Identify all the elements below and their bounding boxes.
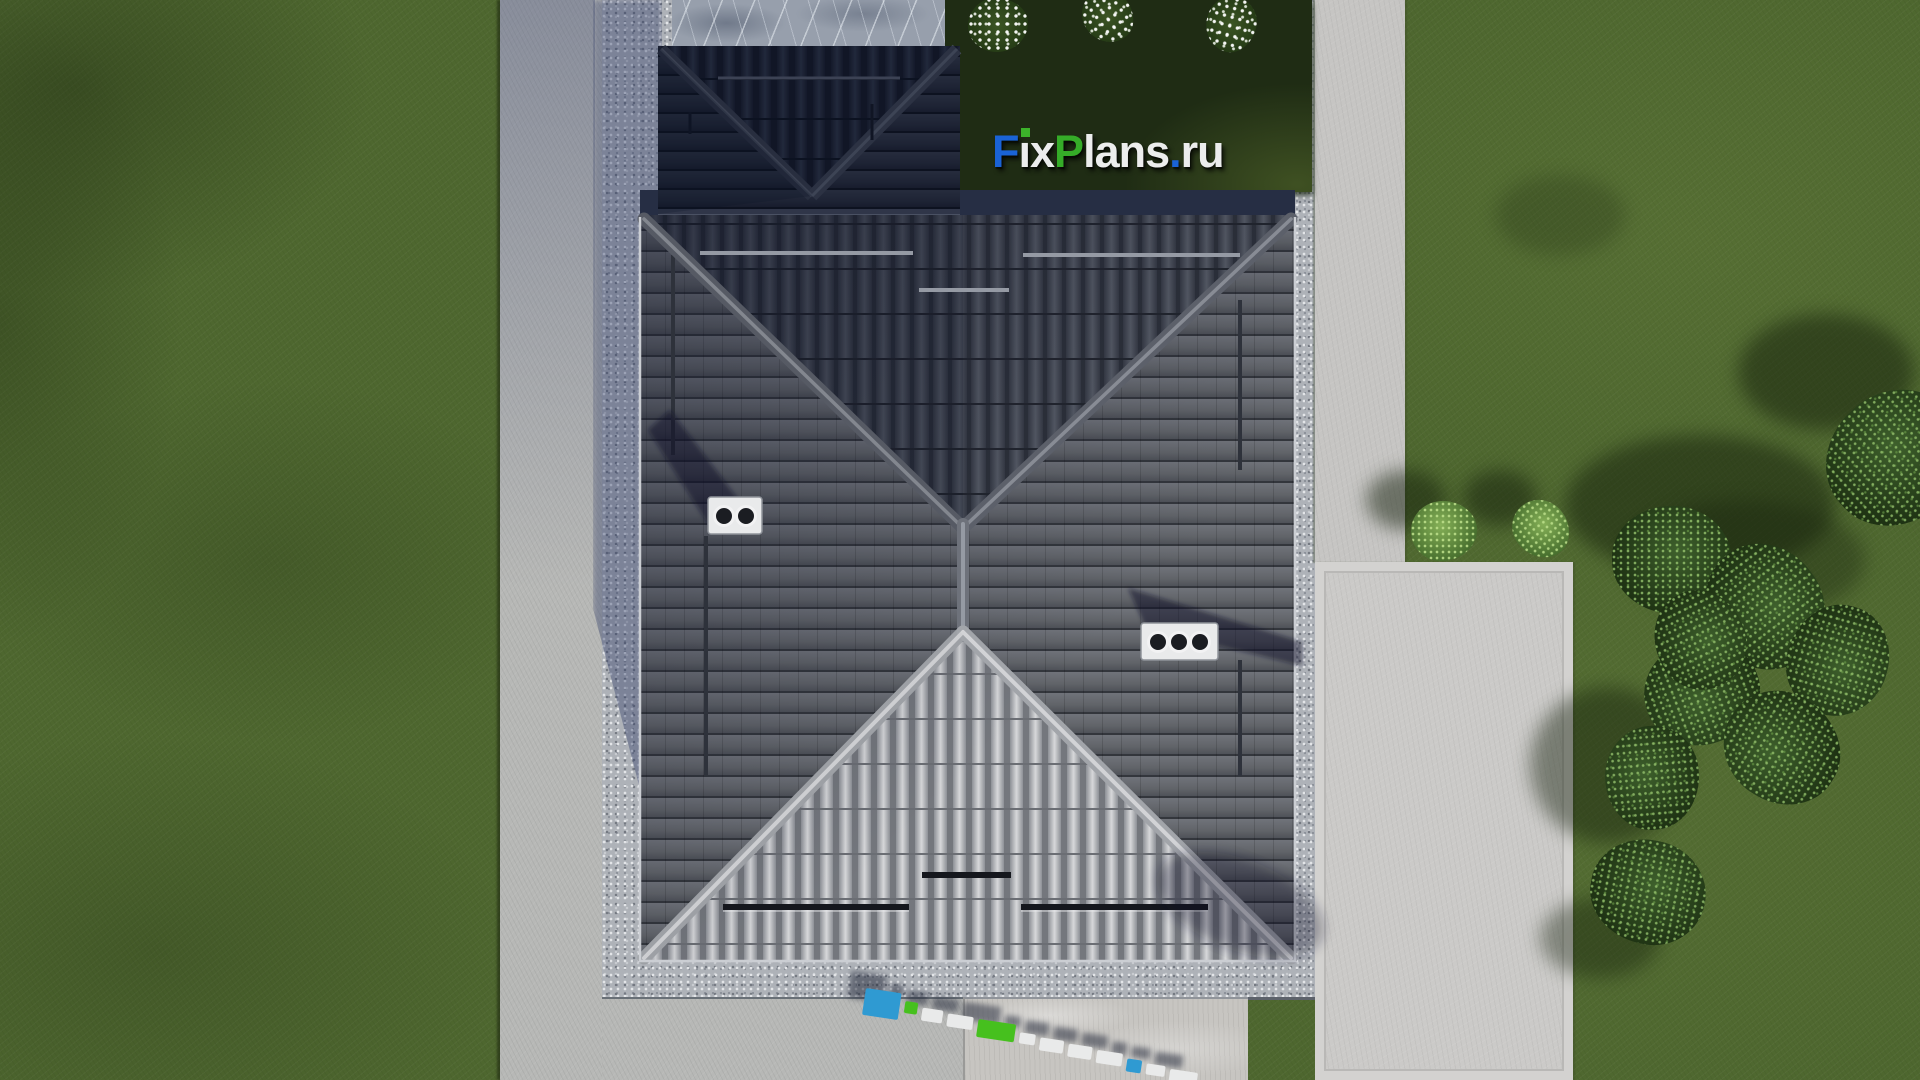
- watermark-slab: [1039, 1037, 1065, 1053]
- brand-logo: FıxPlans.ru: [992, 126, 1224, 182]
- watermark-slab: [1067, 1044, 1093, 1060]
- watermark-slab: [921, 1008, 944, 1024]
- logo-letter: r: [1181, 126, 1198, 178]
- logo-letter: n: [1119, 126, 1146, 178]
- logo-letter: F: [992, 126, 1019, 178]
- logo-letter-dot: [1021, 128, 1030, 137]
- logo-letter: a: [1095, 126, 1119, 178]
- watermark-slab: [1145, 1063, 1165, 1077]
- logo-letter: s: [1145, 126, 1169, 178]
- house-roofs: [0, 0, 1920, 1080]
- logo-letter: l: [1083, 126, 1095, 178]
- watermark-slab: [1019, 1032, 1036, 1045]
- aerial-site-render: FıxPlans.ru: [0, 0, 1920, 1080]
- main-roof: [640, 215, 1338, 980]
- watermark-slab: [946, 1013, 974, 1030]
- logo-letter: x: [1030, 126, 1054, 178]
- watermark-slab: [1126, 1058, 1143, 1073]
- garage-roof: [658, 46, 960, 215]
- logo-letter: ı: [1019, 126, 1031, 178]
- chimney-two-vents: [708, 497, 762, 534]
- logo-letter: P: [1054, 126, 1083, 178]
- logo-letter: u: [1197, 126, 1224, 178]
- watermark-slab: [1095, 1050, 1123, 1067]
- logo-letter: .: [1169, 126, 1181, 178]
- watermark-slab: [904, 1001, 919, 1015]
- watermark-slab: [862, 988, 902, 1020]
- chimney-three-vents: [1141, 623, 1218, 660]
- watermark-slab: [976, 1019, 1016, 1042]
